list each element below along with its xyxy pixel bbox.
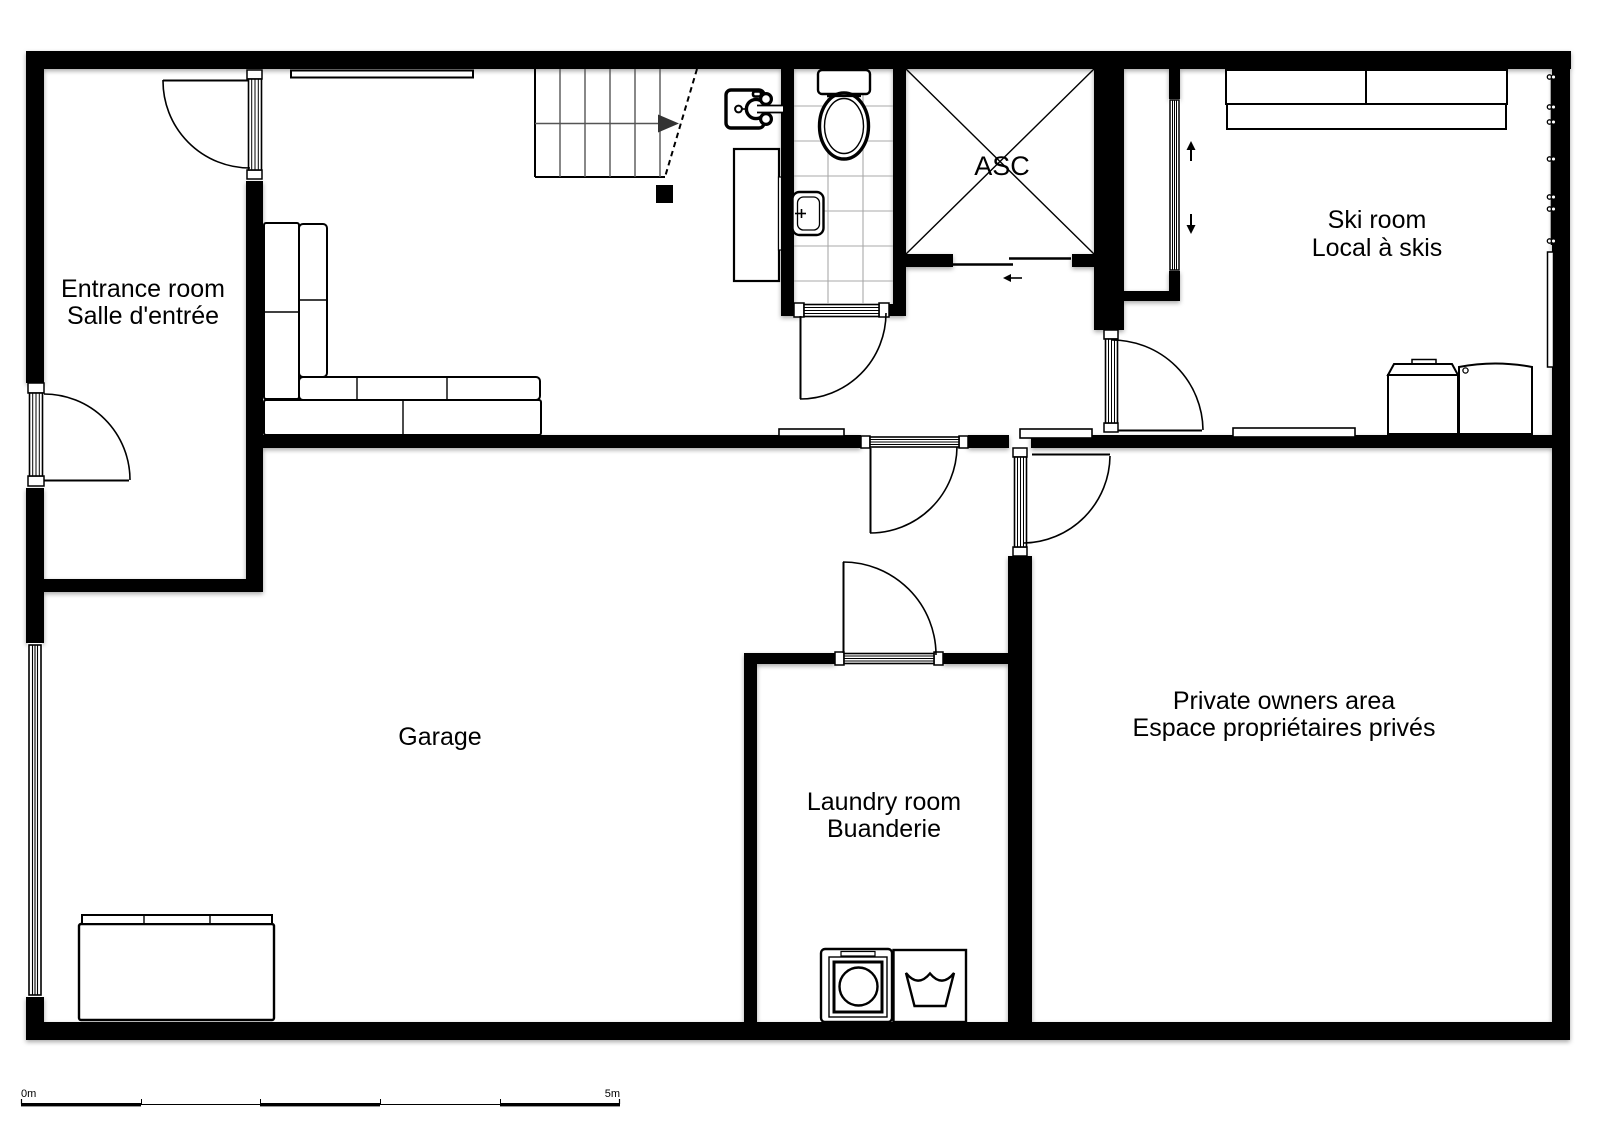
svg-text:Laundry room: Laundry room bbox=[807, 788, 961, 816]
svg-text:Local à skis: Local à skis bbox=[1312, 234, 1443, 262]
svg-text:Entrance room: Entrance room bbox=[61, 275, 225, 303]
svg-text:Buanderie: Buanderie bbox=[827, 815, 941, 843]
svg-text:Private owners area: Private owners area bbox=[1173, 687, 1395, 715]
svg-text:Salle d'entrée: Salle d'entrée bbox=[67, 302, 219, 330]
svg-text:5m: 5m bbox=[605, 1088, 620, 1100]
svg-text:0m: 0m bbox=[21, 1088, 36, 1100]
svg-text:Ski room: Ski room bbox=[1328, 206, 1427, 234]
svg-text:Espace propriétaires privés: Espace propriétaires privés bbox=[1133, 714, 1436, 742]
svg-text:Garage: Garage bbox=[398, 723, 481, 751]
svg-text:ASC: ASC bbox=[974, 151, 1030, 181]
